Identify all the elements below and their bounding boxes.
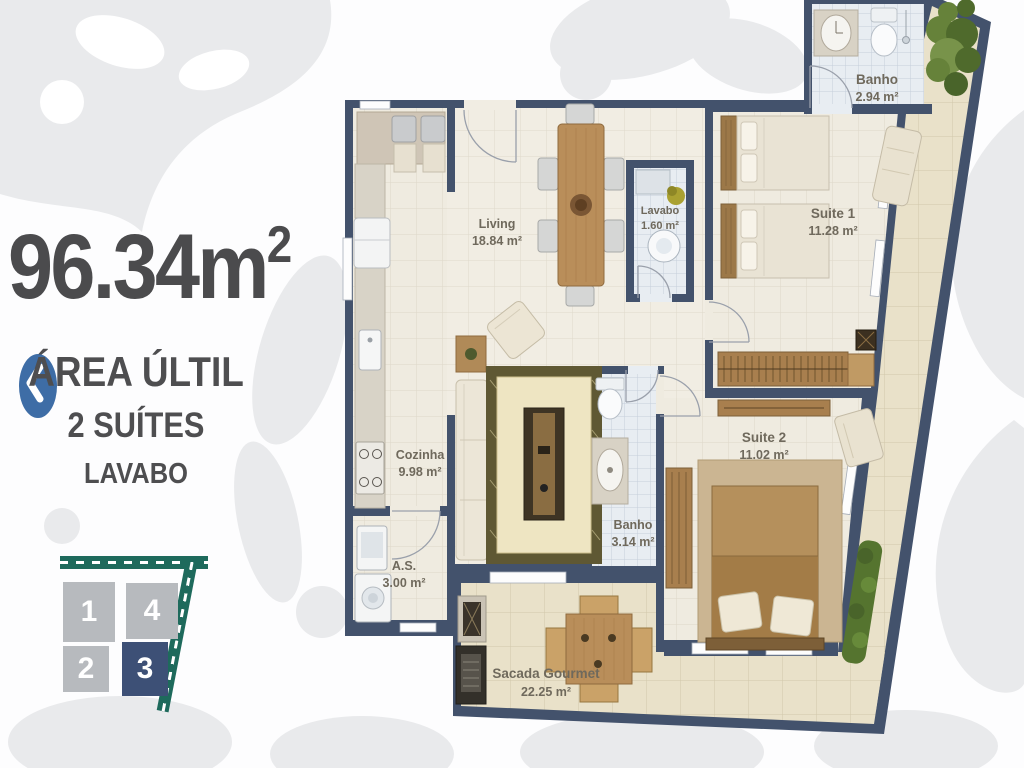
suite2-wardrobe [666,468,692,588]
subtitle-suites: 2 SUÍTES [16,406,255,446]
unit-block-3[interactable]: 3 [122,642,168,696]
label-suite2-area: 11.02 m² [739,448,788,462]
unit-block-4[interactable]: 4 [126,583,178,639]
page: Living 18.84 m² Lavabo 1.60 m² Suite 1 1… [0,0,1024,768]
label-suite1-area: 11.28 m² [808,224,857,238]
label-living-area: 18.84 m² [472,234,522,248]
floorplan: Living 18.84 m² Lavabo 1.60 m² Suite 1 1… [343,0,991,734]
subtitle-lavabo: LAVABO [16,458,255,491]
churrasqueira-grill [456,596,486,704]
label-sacada-area: 22.25 m² [521,685,571,699]
label-lavabo-name: Lavabo [641,205,680,217]
label-living-name: Living [479,217,516,231]
label-lavabo-area: 1.60 m² [641,220,679,232]
subtitle-area-util: ÁREA ÚLTIL [16,348,255,396]
label-banho1-area: 2.94 m² [855,90,898,104]
label-banho1-name: Banho [856,72,898,87]
label-sacada-name: Sacada Gourmet [492,666,600,681]
label-banho2-name: Banho [614,518,653,532]
unit-block-2[interactable]: 2 [63,646,109,692]
info-panel: 96.34m2 ÁREA ÚLTIL 2 SUÍTES LAVABO 1 2 3… [0,0,340,768]
living-rug [486,366,602,564]
stove [356,442,384,494]
side-table [456,336,486,372]
sofa [456,380,488,560]
unit-block-1[interactable]: 1 [63,582,115,642]
label-suite1-name: Suite 1 [811,206,856,221]
kitchen-sink [359,330,381,370]
label-cozinha-name: Cozinha [396,448,446,462]
label-as-name: A.S. [392,559,416,573]
suite2-dresser [718,400,830,416]
laundry-tank [357,526,387,570]
label-banho2-area: 3.14 m² [611,535,654,549]
suite2-bed [698,460,842,650]
total-area-title: 96.34m2 [8,224,292,311]
label-as-area: 3.00 m² [382,576,425,590]
label-suite2-name: Suite 2 [742,430,786,445]
label-cozinha-area: 9.98 m² [398,465,441,479]
fridge [354,218,390,268]
